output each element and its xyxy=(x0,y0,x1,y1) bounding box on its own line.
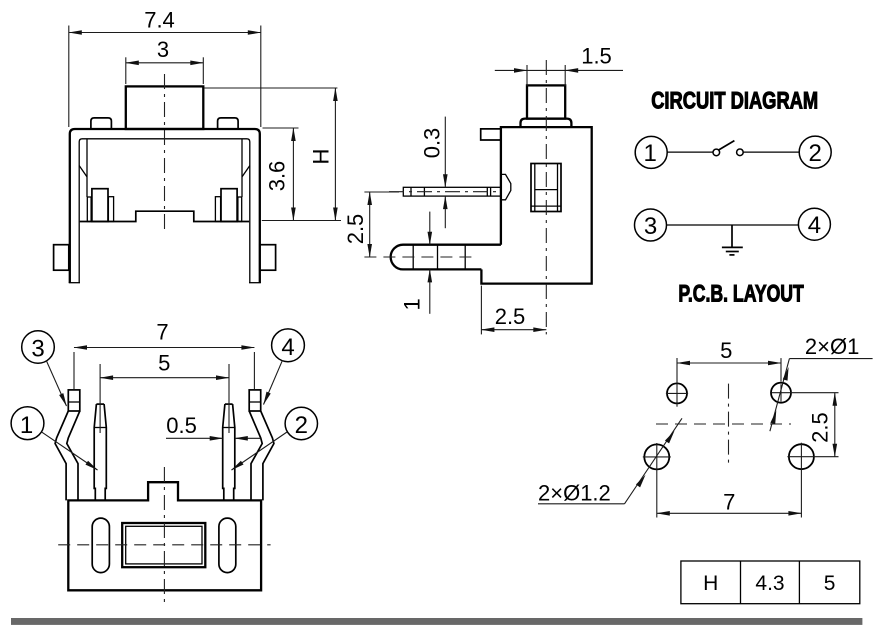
svg-text:2×Ø1.2: 2×Ø1.2 xyxy=(538,480,611,505)
svg-text:4: 4 xyxy=(808,212,821,239)
svg-text:H: H xyxy=(309,149,334,165)
svg-text:0.3: 0.3 xyxy=(419,128,444,159)
svg-text:2.5: 2.5 xyxy=(808,412,833,443)
svg-text:2.5: 2.5 xyxy=(343,214,368,245)
svg-text:5: 5 xyxy=(824,572,836,595)
svg-text:3: 3 xyxy=(31,335,44,362)
svg-text:1.5: 1.5 xyxy=(581,44,612,69)
svg-text:7: 7 xyxy=(156,320,168,345)
svg-text:3: 3 xyxy=(644,213,657,240)
svg-text:1: 1 xyxy=(644,140,657,167)
svg-text:CIRCUIT DIAGRAM: CIRCUIT DIAGRAM xyxy=(651,88,818,115)
svg-text:2: 2 xyxy=(295,412,308,439)
svg-text:5: 5 xyxy=(720,338,732,363)
svg-text:H: H xyxy=(703,572,718,595)
svg-text:1: 1 xyxy=(400,298,425,310)
svg-text:4.3: 4.3 xyxy=(755,572,784,595)
svg-text:2×Ø1: 2×Ø1 xyxy=(805,334,859,359)
svg-text:5: 5 xyxy=(158,350,170,375)
svg-text:2.5: 2.5 xyxy=(495,304,526,329)
svg-text:3: 3 xyxy=(157,37,169,62)
svg-text:2: 2 xyxy=(809,140,822,167)
svg-text:P.C.B. LAYOUT: P.C.B. LAYOUT xyxy=(678,280,804,307)
svg-text:7: 7 xyxy=(723,489,735,514)
svg-text:0.5: 0.5 xyxy=(166,413,197,438)
svg-text:7.4: 7.4 xyxy=(144,8,175,33)
svg-text:1: 1 xyxy=(20,412,33,439)
svg-text:3.6: 3.6 xyxy=(264,161,289,192)
svg-text:4: 4 xyxy=(281,334,294,361)
